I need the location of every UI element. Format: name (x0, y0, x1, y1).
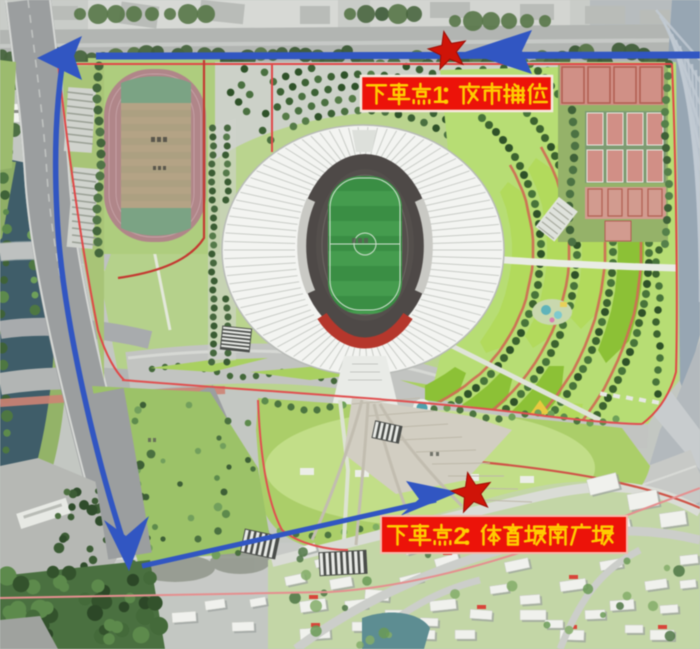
svg-text:：: ： (461, 523, 485, 550)
